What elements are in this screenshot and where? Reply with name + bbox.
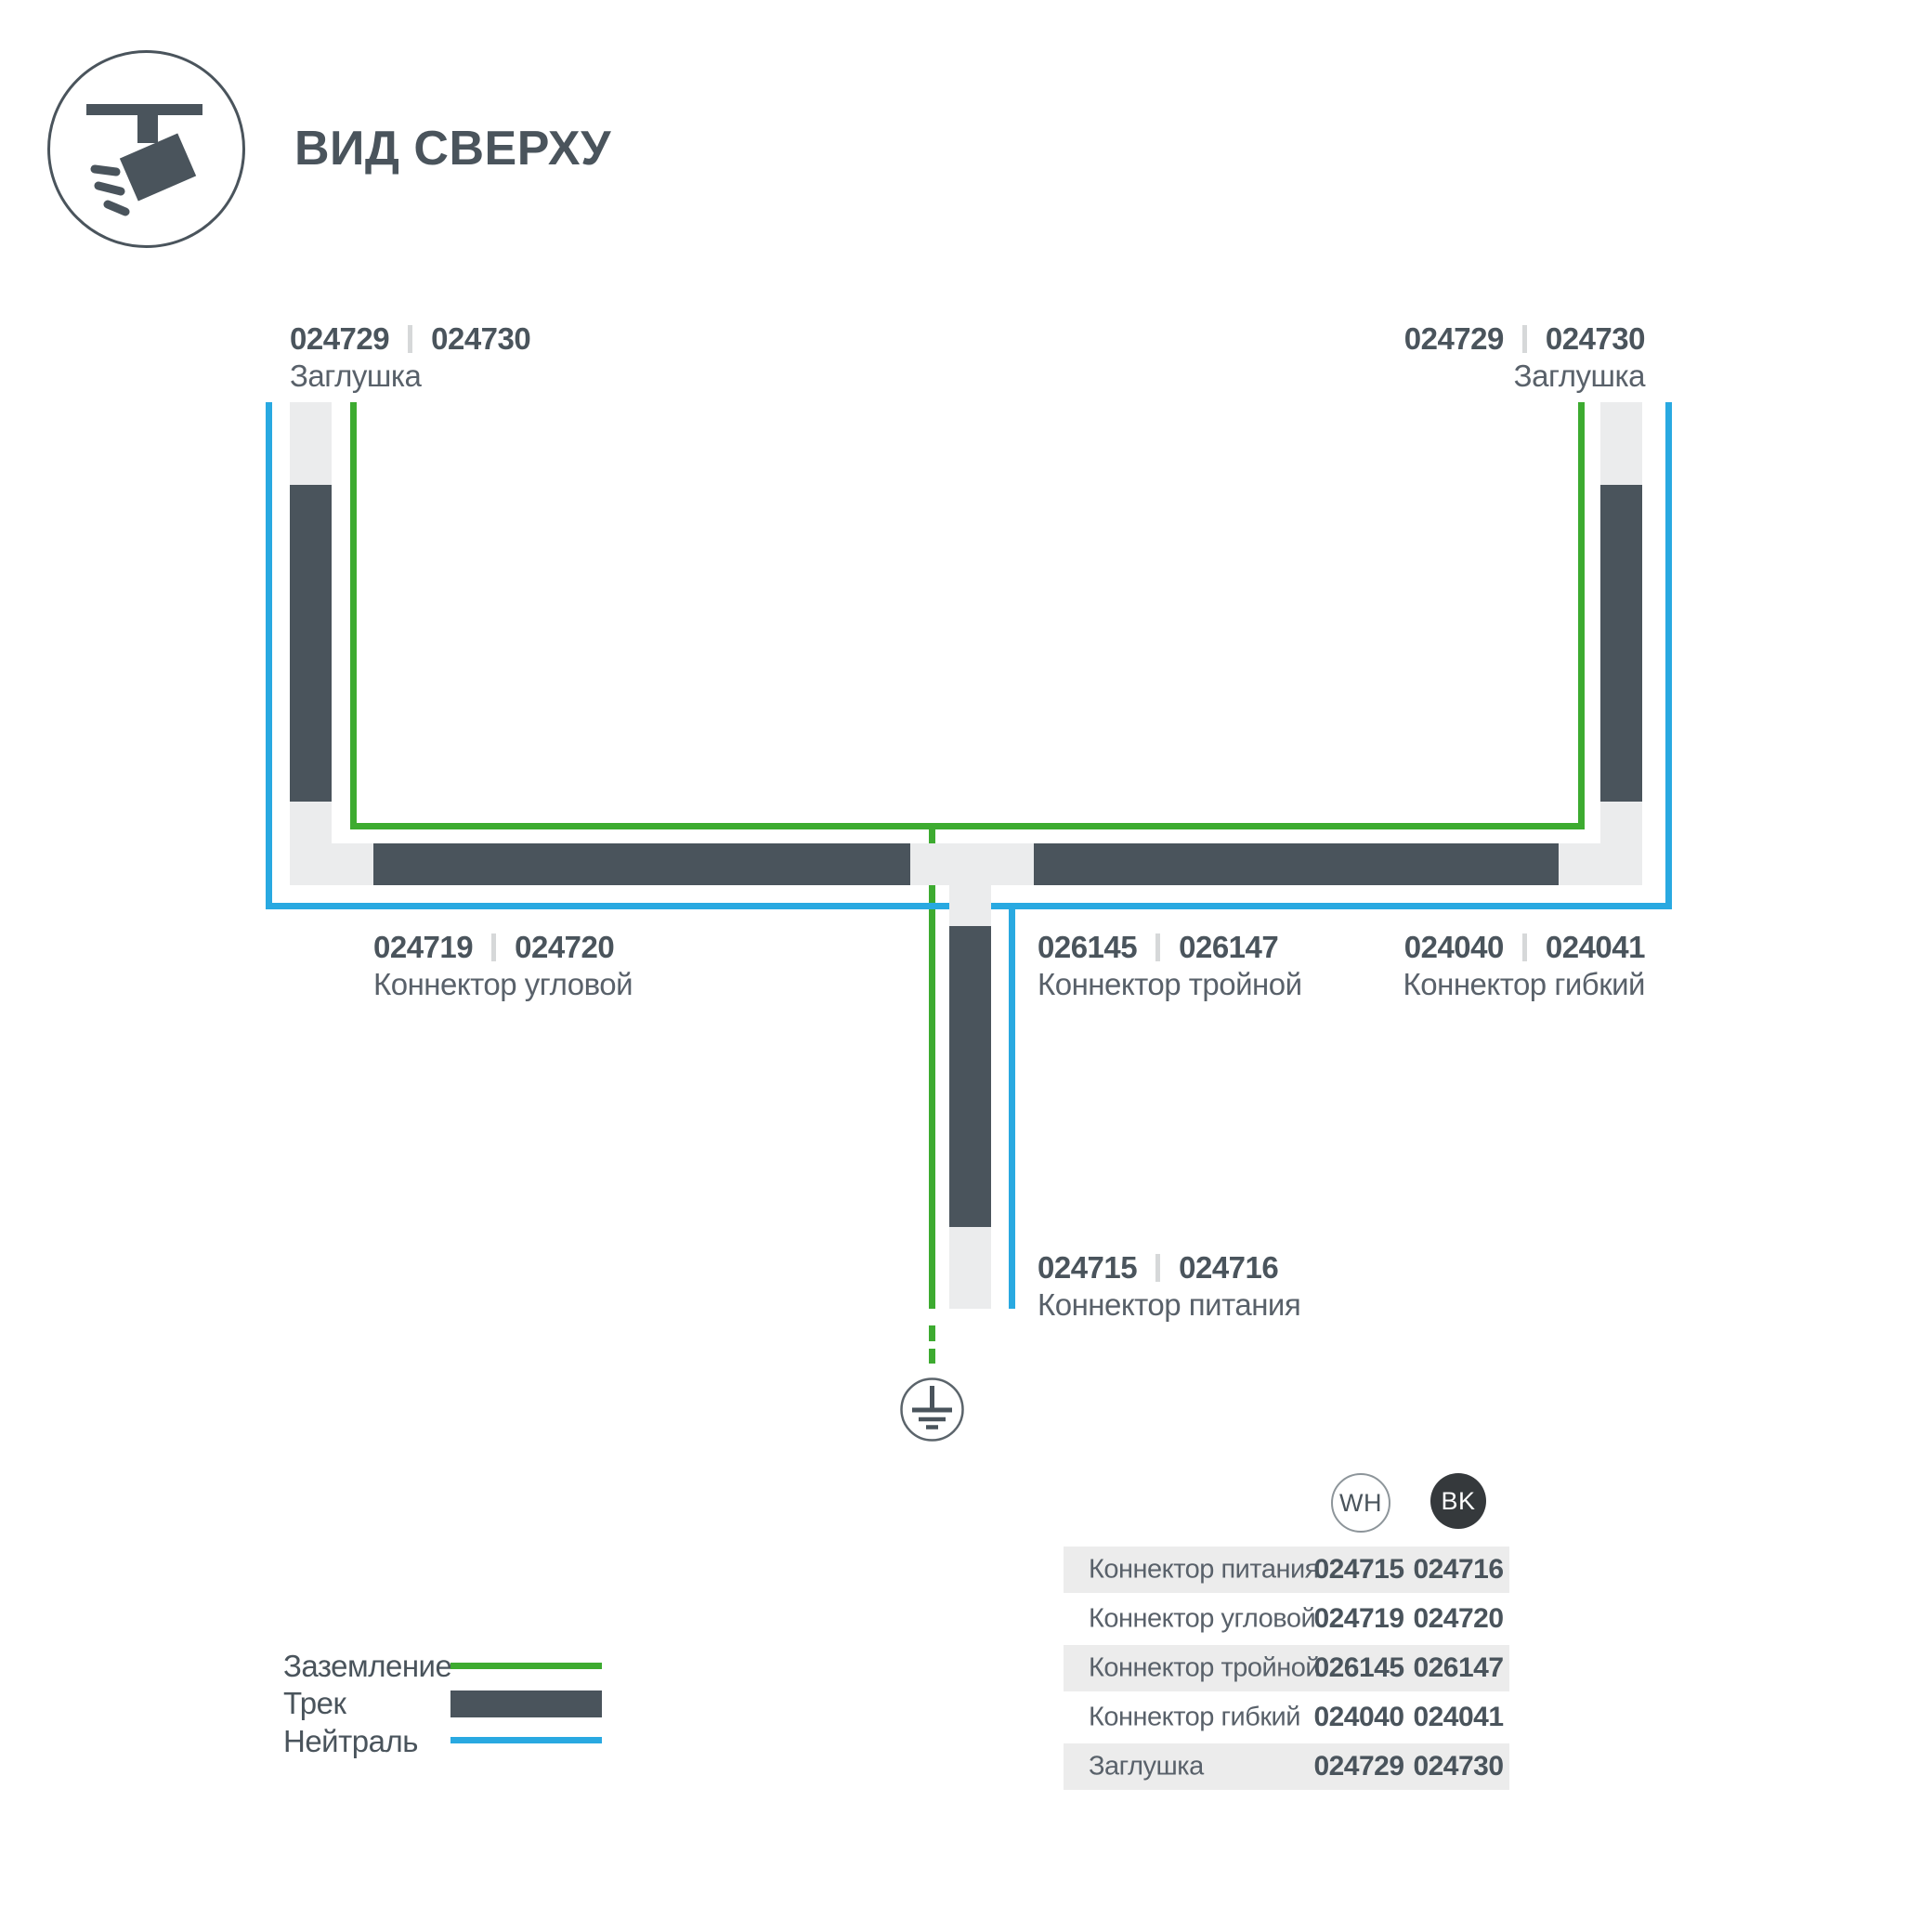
column-badge-black: BK: [1430, 1473, 1486, 1529]
table-row-bk-code: 026147: [1393, 1652, 1523, 1684]
track-segment-left: [290, 485, 332, 802]
track-segment-bottom-right: [1034, 843, 1559, 885]
table-row-bk-code: 024041: [1393, 1702, 1523, 1733]
code-wh: 024729: [290, 320, 389, 358]
corner-connector-left: [290, 802, 332, 885]
part-name: Коннектор угловой: [373, 966, 633, 1003]
legend-track-bar-swatch: [450, 1690, 602, 1717]
code-wh: 024715: [1038, 1249, 1137, 1286]
code-wh: 026145: [1038, 929, 1137, 966]
code-bk: 026147: [1179, 929, 1278, 966]
label-cap-top-left: 024729024730 Заглушка: [290, 320, 530, 395]
legend-neutral-line-swatch: [450, 1737, 602, 1743]
triple-connector-leg: [949, 885, 991, 926]
part-codes: 024719024720: [373, 929, 633, 966]
label-power-connector: 024715024716 Коннектор питания: [1038, 1249, 1300, 1324]
part-name: Коннектор гибкий: [1403, 966, 1645, 1003]
neutral-wire-middle-vertical: [1009, 903, 1015, 1309]
ground-wire-right-vertical: [1578, 402, 1585, 829]
flex-connector-right: [1600, 802, 1642, 885]
label-flex-connector: 024040024041 Коннектор гибкий: [1403, 929, 1645, 1003]
page-title: ВИД СВЕРХУ: [294, 121, 611, 176]
table-row-bk-code: 024716: [1393, 1554, 1523, 1586]
label-triple-connector: 026145026147 Коннектор тройной: [1038, 929, 1302, 1003]
table-row-bk-code: 024730: [1393, 1751, 1523, 1782]
triple-connector: [910, 843, 1034, 885]
track-segment-right: [1600, 485, 1642, 802]
legend-label-track: Трек: [283, 1686, 346, 1721]
table-row-name: Коннектор угловой: [1089, 1604, 1315, 1635]
ground-wire-dash: [929, 1349, 935, 1364]
table-row-name: Коннектор тройной: [1089, 1653, 1320, 1684]
table-row-name: Коннектор питания: [1089, 1555, 1319, 1586]
part-name: Коннектор питания: [1038, 1286, 1300, 1324]
end-cap-top-right: [1600, 402, 1642, 485]
column-label-bk: BK: [1441, 1487, 1475, 1516]
part-name: Коннектор тройной: [1038, 966, 1302, 1003]
legend-label-ground: Заземление: [283, 1649, 451, 1684]
flex-connector-right: [1559, 843, 1600, 885]
label-corner-connector: 024719024720 Коннектор угловой: [373, 929, 633, 1003]
part-name: Заглушка: [290, 358, 530, 395]
legend-label-neutral: Нейтраль: [283, 1724, 418, 1759]
code-wh: 024040: [1404, 929, 1504, 966]
code-bk: 024730: [431, 320, 530, 358]
code-separator: [1155, 1254, 1160, 1282]
part-codes: 024040024041: [1403, 929, 1645, 966]
code-separator: [1522, 325, 1527, 353]
part-codes: 026145026147: [1038, 929, 1302, 966]
power-connector: [949, 1227, 991, 1309]
track-segment-bottom-left: [373, 843, 910, 885]
code-wh: 024719: [373, 929, 473, 966]
table-row: Заглушка 024729 024730: [1064, 1743, 1509, 1790]
table-row-bk-code: 024720: [1393, 1603, 1523, 1635]
ground-wire-middle-vertical: [929, 823, 935, 1309]
earth-ground-icon: [898, 1376, 966, 1443]
table-row: Коннектор тройной 026145 026147: [1064, 1645, 1509, 1691]
code-bk: 024720: [515, 929, 614, 966]
code-bk: 024730: [1546, 320, 1645, 358]
neutral-wire-left-vertical: [266, 402, 272, 909]
table-row-name: Заглушка: [1089, 1752, 1204, 1782]
code-bk: 024041: [1546, 929, 1645, 966]
part-name: Заглушка: [1404, 358, 1645, 395]
ground-wire-dash: [929, 1325, 935, 1341]
label-cap-top-right: 024729024730 Заглушка: [1404, 320, 1645, 395]
code-separator: [1522, 933, 1527, 961]
part-codes: 024715024716: [1038, 1249, 1300, 1286]
column-label-wh: WH: [1339, 1489, 1382, 1518]
table-row: Коннектор угловой 024719 024720: [1064, 1596, 1509, 1642]
table-row: Коннектор питания 024715 024716: [1064, 1547, 1509, 1593]
legend-ground-line-swatch: [450, 1663, 602, 1669]
part-codes: 024729024730: [290, 320, 530, 358]
ground-wire-horizontal: [350, 823, 1585, 829]
table-row-name: Коннектор гибкий: [1089, 1703, 1300, 1733]
neutral-wire-right-vertical: [1665, 402, 1672, 909]
code-separator: [408, 325, 412, 353]
table-row: Коннектор гибкий 024040 024041: [1064, 1694, 1509, 1741]
code-separator: [1155, 933, 1160, 961]
page: ВИД СВЕРХУ 024729024730 Заглушка 02: [0, 0, 1932, 1932]
corner-connector-left: [332, 843, 373, 885]
track-segment-middle: [949, 926, 991, 1227]
part-codes: 024729024730: [1404, 320, 1645, 358]
end-cap-top-left: [290, 402, 332, 485]
track-spotlight-icon: [46, 49, 246, 249]
ground-wire-left-vertical: [350, 402, 357, 829]
code-separator: [491, 933, 496, 961]
code-bk: 024716: [1179, 1249, 1278, 1286]
column-badge-white: WH: [1331, 1473, 1390, 1533]
code-wh: 024729: [1404, 320, 1504, 358]
